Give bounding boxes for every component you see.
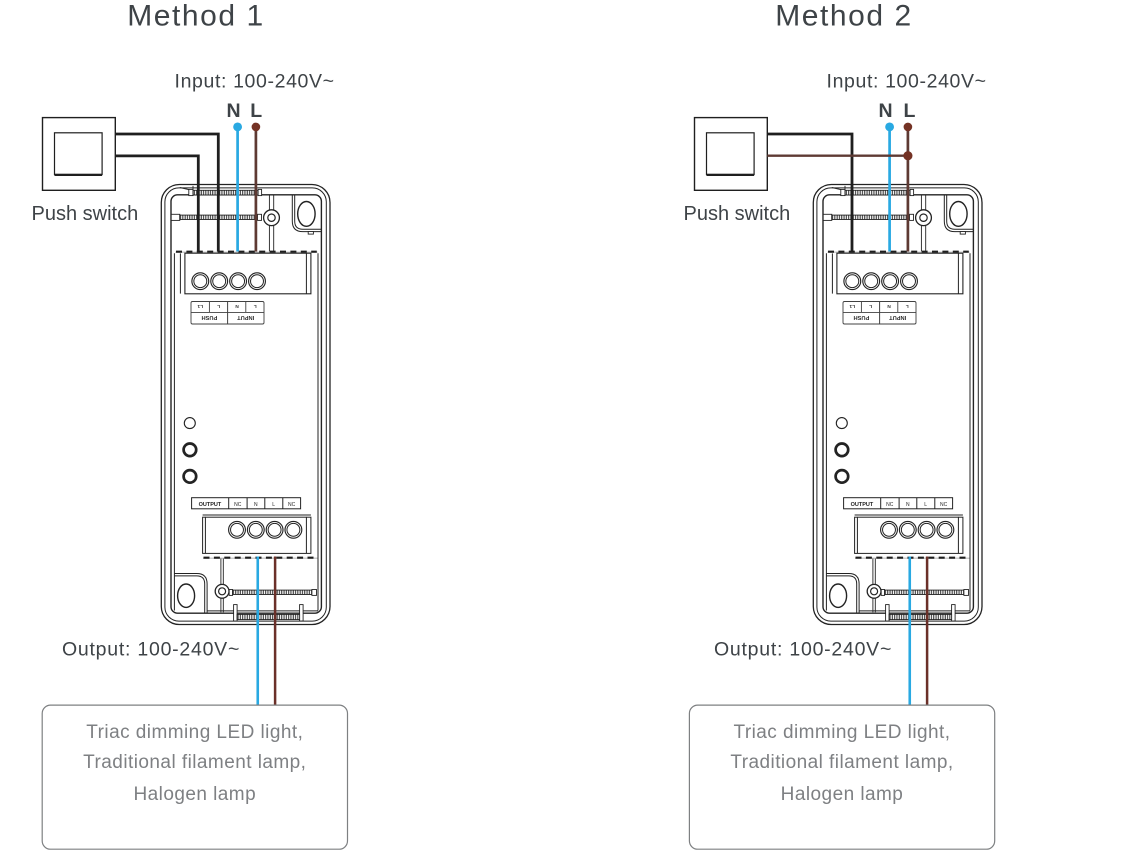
svg-text:Halogen lamp: Halogen lamp — [133, 784, 256, 805]
svg-text:N: N — [227, 100, 241, 122]
svg-text:Output: 100-240V~: Output: 100-240V~ — [62, 639, 240, 661]
svg-text:Method 1: Method 1 — [127, 0, 264, 32]
svg-text:Triac dimming LED light,: Triac dimming LED light, — [733, 722, 950, 743]
svg-text:Input: 100-240V~: Input: 100-240V~ — [827, 70, 987, 92]
svg-text:L: L — [250, 100, 262, 122]
svg-text:Triac dimming LED light,: Triac dimming LED light, — [86, 722, 303, 743]
svg-text:L: L — [904, 100, 916, 122]
svg-text:Traditional filament lamp,: Traditional filament lamp, — [83, 752, 306, 773]
svg-text:Traditional filament lamp,: Traditional filament lamp, — [730, 752, 953, 773]
svg-text:N: N — [879, 100, 893, 122]
svg-text:Push switch: Push switch — [32, 203, 139, 225]
svg-text:Push switch: Push switch — [684, 203, 791, 225]
svg-text:Method 2: Method 2 — [775, 0, 912, 32]
svg-text:Halogen lamp: Halogen lamp — [781, 784, 904, 805]
svg-text:Output: 100-240V~: Output: 100-240V~ — [714, 639, 892, 661]
svg-text:Input: 100-240V~: Input: 100-240V~ — [175, 70, 335, 92]
